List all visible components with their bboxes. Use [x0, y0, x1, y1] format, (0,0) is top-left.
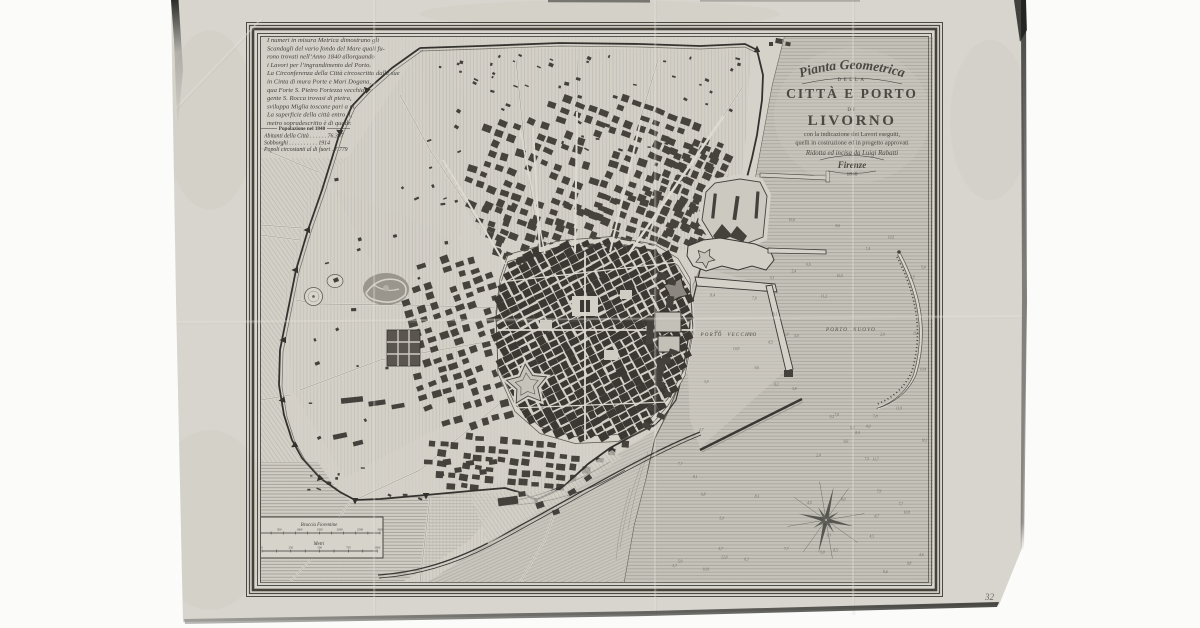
- svg-text:500: 500: [277, 528, 282, 532]
- svg-text:La superficie della città entr: La superficie della città entro il,: [266, 112, 352, 119]
- svg-text:PORTO NUOVO: PORTO NUOVO: [825, 328, 876, 333]
- svg-text:in Cinta di mura Porte e Mari: in Cinta di mura Porte e Mari Dogana,: [267, 79, 371, 86]
- svg-text:1000: 1000: [296, 528, 303, 532]
- svg-text:DELLA: DELLA: [838, 78, 867, 83]
- svg-text:PORTO VECCHIO: PORTO VECCHIO: [700, 333, 758, 338]
- svg-text:LIVORNO: LIVORNO: [808, 113, 897, 129]
- svg-text:I numeri in misura Metrica dim: I numeri in misura Metrica dimostrano gl…: [266, 37, 379, 44]
- svg-text:Ridotta ed incisa da Luigi Rab: Ridotta ed incisa da Luigi Rabatti: [805, 150, 898, 157]
- svg-text:1000: 1000: [374, 546, 381, 550]
- svg-text:Popolazione nel 1840: Popolazione nel 1840: [279, 126, 326, 132]
- svg-text:i Lavori per l’ingrandimento d: i Lavori per l’ingrandimento del Porto.: [267, 62, 371, 69]
- svg-text:sviluppa Miglia toscane pari a: sviluppa Miglia toscane pari a m.: [267, 103, 356, 110]
- svg-text:qua Forte S. Pietro Fortezza v: qua Forte S. Pietro Fortezza vecchia,: [267, 87, 366, 94]
- svg-text:gente S. Rocca trovasi di piet: gente S. Rocca trovasi di pietra,: [267, 95, 352, 102]
- svg-text:500: 500: [317, 546, 322, 550]
- svg-text:La Circonferenza della Città c: La Circonferenza della Città circoscritt…: [266, 70, 400, 77]
- svg-text:rono trovati nell’Anno 1840 al: rono trovati nell’Anno 1840 allorquando: [267, 54, 375, 61]
- svg-text:250: 250: [289, 546, 294, 550]
- svg-text:Sobborghi . . . . . . . . . .: Sobborghi . . . . . . . . . . 1914: [264, 140, 330, 147]
- svg-text:Scandagli del vario fondo del: Scandagli del vario fondo del Mare quali…: [267, 45, 385, 52]
- svg-text:Popoli circostanti al di fuori: Popoli circostanti al di fuori . 7.779: [263, 146, 348, 153]
- svg-text:Abitanti della Città . . . . .: Abitanti della Città . . . . . . 76.397: [263, 134, 345, 140]
- svg-text:CITTÀ E PORTO: CITTÀ E PORTO: [786, 86, 918, 101]
- svg-text:750: 750: [346, 546, 351, 550]
- svg-text:Firenze: Firenze: [837, 160, 867, 170]
- svg-text:1500: 1500: [317, 528, 324, 532]
- svg-text:3000: 3000: [377, 528, 384, 532]
- svg-text:32: 32: [984, 592, 995, 602]
- svg-text:2500: 2500: [357, 528, 364, 532]
- svg-text:2000: 2000: [337, 528, 344, 532]
